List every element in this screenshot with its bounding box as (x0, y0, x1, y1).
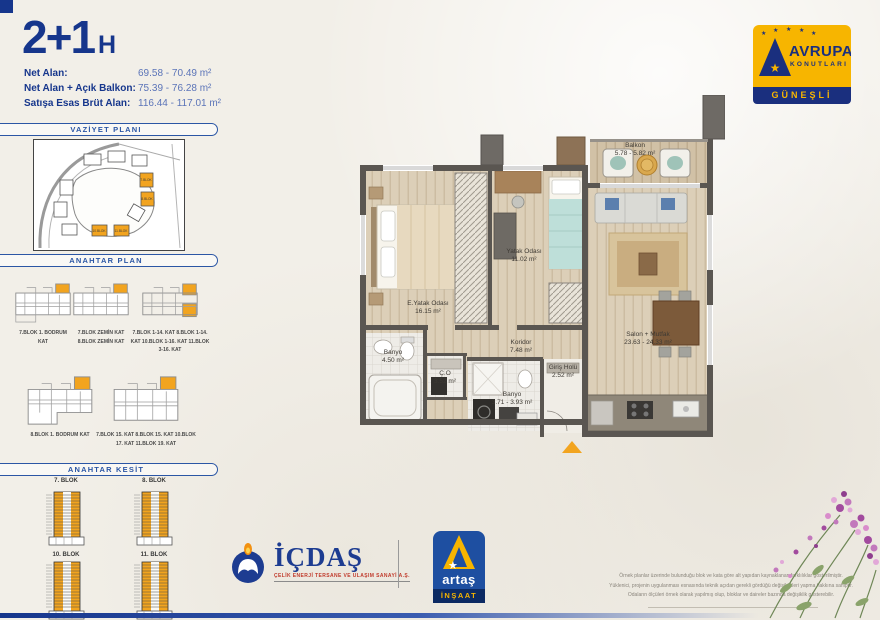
key-plan-item: 7.BLOK 1-14. KAT 8.BLOK 1-14. KAT 10.BLO… (130, 280, 210, 355)
key-plan-item: 7.BLOK ZEMİN KAT 8.BLOK ZEMİN KAT (72, 280, 130, 355)
artas-logo: ★ artaş İNŞAAT (433, 531, 485, 603)
key-section-item: 8. BLOK (110, 478, 198, 549)
toilet (518, 370, 532, 388)
key-plan-drawing (26, 374, 94, 428)
corner-accent-square (0, 0, 13, 13)
star-icon: ★ (786, 26, 791, 33)
shaft (481, 135, 503, 165)
sofa-pillow (661, 198, 675, 210)
star-icon: ★ (773, 27, 778, 34)
site-plan-map: 7.BLOK 8.BLOK 10.BLOK 11.BLOK (33, 139, 185, 251)
floor-plan: Balkon 5.78 - 5.82 m² Salon + Mutfak 23.… (355, 95, 725, 460)
section-header-anahtar-plan: ANAHTAR PLAN (0, 254, 218, 267)
brand-subname: KONUTLARI (790, 61, 848, 68)
icdas-wordmark: İÇDAŞ (274, 544, 410, 571)
table-row: Net Alan + Açık Balkon: 75.39 - 76.28 m² (24, 83, 324, 94)
area-table: Net Alan: 69.58 - 70.49 m² Net Alan + Aç… (24, 68, 324, 113)
block-label: 8. BLOK (142, 478, 166, 484)
table-row: Net Alan: 69.58 - 70.49 m² (24, 68, 324, 79)
floor-plan-drawing (355, 95, 725, 460)
bed-headboard (371, 207, 377, 287)
key-plan-caption: 7.BLOK 1. BODRUM KAT (14, 329, 72, 346)
room-label-yatak: Yatak Odası 11.02 m² (506, 248, 541, 264)
key-plan-caption: 7.BLOK 1-14. KAT 8.BLOK 1-14. KAT 10.BLO… (130, 329, 210, 355)
brand-name: AVRUPA (789, 43, 851, 60)
dining-chair (679, 347, 691, 357)
key-section-grid: 7. BLOK 8. BLOK 10. BLOK (22, 478, 198, 620)
star-icon: ★ (799, 27, 804, 34)
key-plan-caption: 7.BLOK ZEMİN KAT 8.BLOK ZEMİN KAT (72, 329, 130, 346)
key-plan-drawing (112, 374, 180, 428)
sofa-pillow (605, 198, 619, 210)
room-label-giris: Giriş Holü 2.52 m² (549, 364, 578, 380)
building-section-drawing (131, 559, 177, 620)
pillow (381, 247, 395, 277)
area-label: Satışa Esas Brüt Alan: (24, 98, 138, 109)
building-section-drawing (43, 485, 89, 549)
icdas-tagline: ÇELİK ENERJİ TERSANE VE ULAŞIM SANAYİ A.… (274, 573, 410, 582)
key-plan-caption: 8.BLOK 1. BODRUM KAT (30, 431, 89, 440)
page-title: 2+1H (22, 14, 116, 60)
artas-wordmark: artaş (433, 572, 485, 587)
section-title: VAZİYET PLANI (0, 124, 217, 135)
area-label: Net Alan: (24, 68, 138, 79)
room-label-banyo1: Banyo 4.50 m² (382, 349, 404, 365)
artas-a-icon: ★ (433, 531, 485, 571)
room-label-co: Ç.O 3.52 m² (434, 370, 456, 386)
section-title: ANAHTAR PLAN (0, 255, 217, 266)
building-section-drawing (131, 485, 177, 549)
footer-accent-bar (0, 613, 758, 618)
room-label-eyatak: E.Yatak Odası 16.15 m² (407, 300, 448, 316)
chair (512, 196, 524, 208)
dresser (549, 283, 583, 323)
key-plan-drawing (72, 280, 130, 326)
key-plan-row-2: 8.BLOK 1. BODRUM KAT 7.BLOK 15. KAT 8.BL… (26, 374, 198, 448)
site-block-label: 10.BLOK (93, 229, 107, 233)
coffee-table (639, 253, 657, 275)
service-core (703, 95, 725, 139)
dining-chair (659, 291, 671, 301)
key-plan-drawing (141, 280, 199, 326)
key-plan-caption: 7.BLOK 15. KAT 8.BLOK 15. KAT 10.BLOK 17… (94, 431, 198, 448)
nightstand (369, 293, 383, 305)
room-label-salon: Salon + Mutfak 23.63 - 24.33 m² (624, 331, 672, 347)
room-label-balkon: Balkon 5.78 - 5.82 m² (615, 142, 655, 158)
pillow (381, 211, 395, 241)
block-label: 7. BLOK (54, 478, 78, 484)
svg-text:★: ★ (448, 560, 458, 571)
pillow (552, 180, 580, 194)
key-section-item: 7. BLOK (22, 478, 110, 549)
avrupa-konutlari-logo: ★ ★ ★ ★ ★ ★ AVRUPA KONUTLARI GÜNEŞLİ (753, 25, 851, 104)
dining-chair (659, 347, 671, 357)
site-block-label: 7.BLOK (140, 178, 152, 182)
project-location-badge: GÜNEŞLİ (753, 87, 851, 104)
key-plan-row-1: 7.BLOK 1. BODRUM KAT 7.BLOK ZEMİN KAT 8.… (14, 280, 210, 355)
icdas-mark-icon (228, 540, 268, 586)
area-value: 116.44 - 117.01 m² (138, 98, 221, 109)
desk (495, 171, 541, 193)
section-header-vaziyet: VAZİYET PLANI (0, 123, 218, 136)
stove (627, 401, 653, 419)
plant (667, 156, 683, 170)
fridge (591, 401, 613, 425)
key-plan-item: 7.BLOK 1. BODRUM KAT (14, 280, 72, 355)
logo-yellow-box: ★ ★ ★ ★ ★ ★ AVRUPA KONUTLARI (753, 25, 851, 87)
site-block-label: 8.BLOK (141, 197, 153, 201)
key-plan-drawing (14, 280, 72, 326)
block-label: 10. BLOK (52, 552, 79, 558)
section-title: ANAHTAR KESİT (0, 464, 217, 475)
area-label: Net Alan + Açık Balkon: (24, 83, 138, 94)
key-section-item: 11. BLOK (110, 552, 198, 620)
block-label: 11. BLOK (141, 552, 168, 558)
nightstand (369, 187, 383, 199)
wardrobe (455, 173, 487, 323)
room-label-koridor: Koridor 7.48 m² (510, 339, 532, 355)
section-header-anahtar-kesit: ANAHTAR KESİT (0, 463, 218, 476)
site-block-label: 11.BLOK (115, 229, 129, 233)
dining-chair (679, 291, 691, 301)
room-label-banyo2: Banyo 3.71 - 3.93 m² (492, 391, 532, 407)
entry-arrow-icon (562, 441, 582, 453)
brochure-page: 2+1H Net Alan: 69.58 - 70.49 m² Net Alan… (0, 0, 880, 620)
area-value: 69.58 - 70.49 m² (138, 68, 211, 79)
table-row: Satışa Esas Brüt Alan: 116.44 - 117.01 m… (24, 98, 324, 109)
key-section-item: 10. BLOK (22, 552, 110, 620)
svg-text:★: ★ (770, 61, 781, 75)
icdas-logo: İÇDAŞ ÇELİK ENERJİ TERSANE VE ULAŞIM SAN… (228, 540, 410, 586)
shelf (431, 359, 461, 369)
artas-box: ★ artaş (433, 531, 485, 589)
letter-a-icon: ★ (758, 34, 792, 76)
logo-divider (398, 540, 399, 588)
area-value: 75.39 - 76.28 m² (138, 83, 211, 94)
flower-decoration (740, 420, 880, 620)
unit-variant: H (98, 31, 116, 59)
shaft (557, 137, 585, 165)
site-plan-drawing: 7.BLOK 8.BLOK 10.BLOK 11.BLOK (34, 140, 184, 250)
key-plan-item: 7.BLOK 15. KAT 8.BLOK 15. KAT 10.BLOK 17… (94, 374, 198, 448)
key-plan-item: 8.BLOK 1. BODRUM KAT (26, 374, 94, 448)
star-icon: ★ (811, 30, 816, 37)
artas-insaat-band: İNŞAAT (433, 589, 485, 603)
unit-type: 2+1 (22, 11, 94, 63)
building-section-drawing (43, 559, 89, 620)
